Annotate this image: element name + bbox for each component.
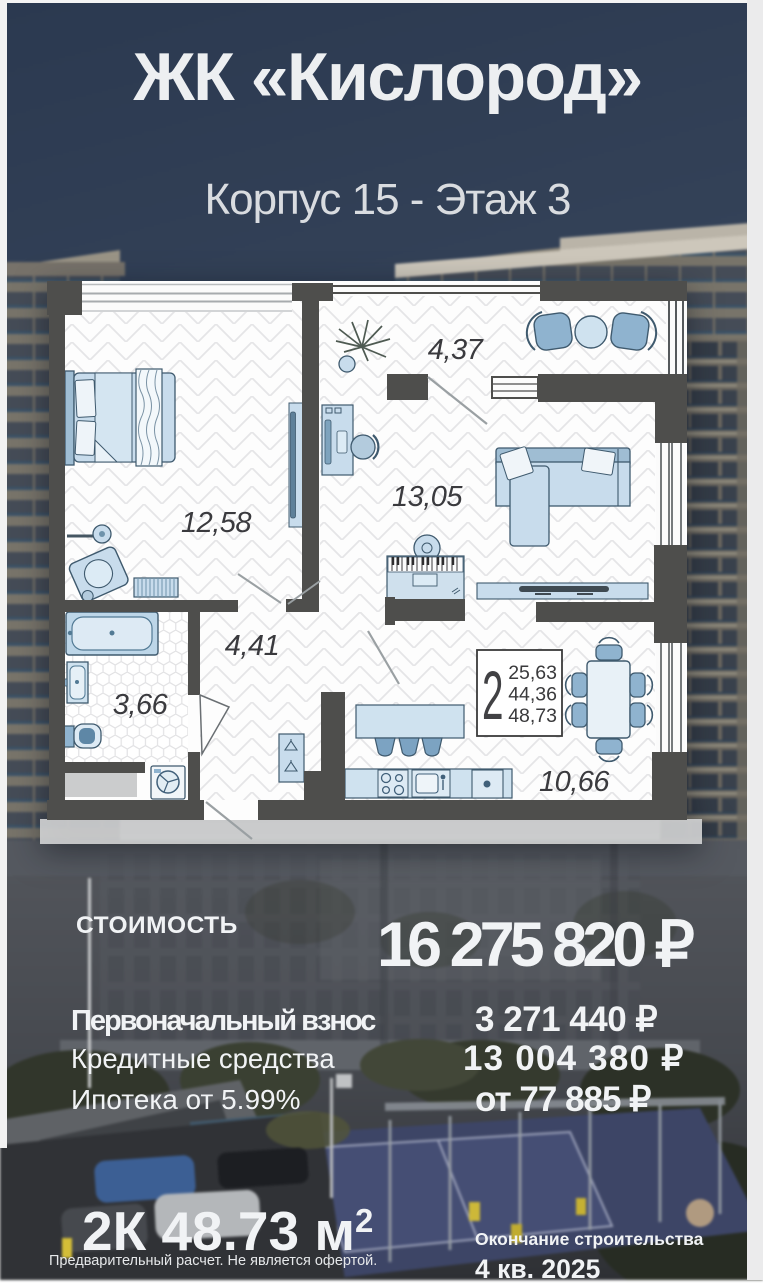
svg-text:44,36: 44,36 bbox=[508, 684, 557, 706]
svg-text:10,66: 10,66 bbox=[539, 766, 610, 798]
svg-text:48,73: 48,73 bbox=[508, 705, 557, 727]
svg-text:25,63: 25,63 bbox=[508, 662, 557, 684]
svg-text:2: 2 bbox=[482, 656, 503, 734]
svg-text:13,05: 13,05 bbox=[392, 481, 463, 513]
svg-text:4,41: 4,41 bbox=[225, 630, 279, 662]
svg-text:4,37: 4,37 bbox=[428, 334, 485, 366]
svg-text:12,58: 12,58 bbox=[181, 507, 251, 539]
svg-text:3,66: 3,66 bbox=[113, 689, 169, 721]
